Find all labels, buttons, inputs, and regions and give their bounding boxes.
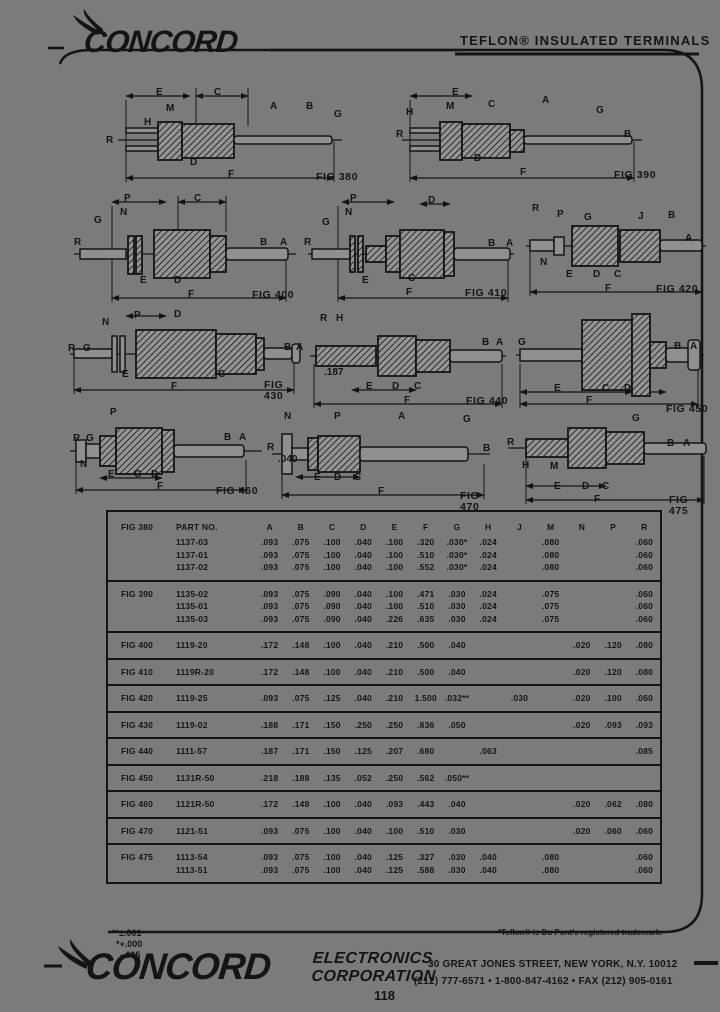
dim-label-fig450-D: D [624, 384, 631, 394]
dim-label-fig380-E: E [156, 88, 163, 98]
value-cell-G: .030 [441, 851, 472, 864]
figure-fig390: HMECAGRBDFFIG 390 [392, 82, 700, 190]
value-cell-D: .040 [348, 864, 379, 877]
dim-label-fig380-F: F [228, 170, 234, 180]
value-cell-D: .052 [348, 772, 379, 785]
header-brand-logo: CONCORD [82, 24, 239, 60]
column-header-P: P [598, 518, 629, 536]
value-cell-N: .020 [566, 825, 597, 838]
dim-label-fig410-G: G [322, 218, 330, 228]
figure-caption-fig410: FIG 410 [465, 288, 507, 299]
table-group-fig-390: FIG 3901135-02.093.075.090.040.100.471.0… [108, 580, 660, 632]
footnote-teflon-trademark: *Teflon® is Du Pont's registered tradema… [498, 928, 663, 937]
value-cell-E: .100 [379, 588, 410, 601]
dim-label-fig400-D: D [174, 276, 181, 286]
value-cell-R: .085 [629, 745, 660, 758]
dim-label-fig470-040: .040 [278, 455, 297, 465]
value-cell-E: .093 [379, 798, 410, 811]
value-cell-F: .500 [410, 639, 441, 652]
value-cell-D: .040 [348, 549, 379, 562]
fig-cell: FIG 410 [108, 666, 166, 679]
value-cell-E: .210 [379, 692, 410, 705]
dim-label-fig390-B: B [624, 130, 631, 140]
fig-cell: FIG 390 [108, 588, 166, 601]
figure-fig475: RGBAHMEDCFFIG 475 [502, 408, 710, 508]
value-cell-C: .150 [316, 719, 347, 732]
dim-label-fig475-G: G [632, 414, 640, 424]
value-cell-N: .020 [566, 798, 597, 811]
value-cell-F: .680 [410, 745, 441, 758]
dim-label-fig390-G: G [596, 106, 604, 116]
dim-label-fig400-R: R [74, 238, 81, 248]
value-cell-G: .040 [441, 666, 472, 679]
figure-fig440: RHBA.187EDCFFIG 440 [306, 310, 514, 410]
dim-label-fig475-R: R [507, 438, 514, 448]
value-cell-A: .093 [254, 561, 285, 574]
column-header-A: A [254, 518, 285, 536]
value-cell-H: .063 [473, 745, 504, 758]
value-cell-C: .100 [316, 561, 347, 574]
value-cell-F: .320 [410, 536, 441, 549]
figure-drawing [502, 408, 710, 508]
dim-label-fig380-M: M [166, 104, 174, 114]
column-header-J: J [504, 518, 535, 536]
dim-label-fig450-E: E [554, 384, 561, 394]
dim-label-fig420-F: F [605, 284, 611, 294]
dim-label-fig430-R: R [68, 344, 75, 354]
dim-label-fig470-D: D [334, 473, 341, 483]
dim-label-fig430-F: F [171, 382, 177, 392]
dim-label-fig475-F: F [594, 495, 600, 505]
value-cell-B: .075 [285, 851, 316, 864]
value-cell-B: .075 [285, 864, 316, 877]
value-cell-G: .030 [441, 588, 472, 601]
part-no-cell: 1111-57 [166, 745, 254, 758]
value-cell-E: .250 [379, 772, 410, 785]
dim-label-fig390-M: M [446, 102, 454, 112]
table-group-fig-470: FIG 4701121-51.093.075.100.040.100.510.0… [108, 817, 660, 844]
dim-label-fig475-D: D [582, 482, 589, 492]
value-cell-F: 1.500 [410, 692, 441, 705]
dim-label-fig390-C: C [488, 100, 495, 110]
dim-label-fig460-B: B [224, 433, 231, 443]
fig-cell-header: FIG 380 [108, 518, 166, 536]
value-cell-C: .100 [316, 864, 347, 877]
table-row: FIG 4101119R-20.172.148.100.040.210.500.… [108, 666, 660, 679]
value-cell-F: .443 [410, 798, 441, 811]
figure-fig470: NPAGR.040BEDCFFIG 470 [266, 402, 496, 510]
table-group-fig-440: FIG 4401111-57.187.171.150.125.207.680.0… [108, 737, 660, 764]
value-cell-B: .148 [285, 666, 316, 679]
dim-label-fig460-F: F [157, 482, 163, 492]
value-cell-M: .080 [535, 851, 566, 864]
value-cell-A: .093 [254, 692, 285, 705]
value-cell-B: .075 [285, 613, 316, 626]
value-cell-H: .024 [473, 600, 504, 613]
table-group-fig-420: FIG 4201119-25.093.075.125.040.2101.500.… [108, 684, 660, 711]
table-row: FIG 4701121-51.093.075.100.040.100.510.0… [108, 825, 660, 838]
value-cell-E: .226 [379, 613, 410, 626]
figure-fig450: GBAECDFFIG 450 [512, 300, 710, 418]
fig-cell: FIG 460 [108, 798, 166, 811]
value-cell-M: .075 [535, 613, 566, 626]
dim-label-fig400-F: F [188, 290, 194, 300]
value-cell-F: .510 [410, 600, 441, 613]
column-header-C: C [316, 518, 347, 536]
dim-label-fig400-P: P [124, 194, 131, 204]
value-cell-M: .075 [535, 588, 566, 601]
table-row: 1137-03.093.075.100.040.100.320.030*.024… [108, 536, 660, 549]
table-group-fig-430: FIG 4301119-02.188.171.150.250.250.836.0… [108, 711, 660, 738]
part-no-header: PART NO. [166, 518, 254, 536]
part-no-cell: 1119-25 [166, 692, 254, 705]
part-no-cell: 1135-03 [166, 613, 254, 626]
dim-label-fig390-A: A [542, 96, 549, 106]
column-header-H: H [473, 518, 504, 536]
dim-label-fig420-B: B [668, 211, 675, 221]
value-cell-E: .100 [379, 825, 410, 838]
part-no-cell: 1119-02 [166, 719, 254, 732]
value-cell-M: .075 [535, 600, 566, 613]
table-row: 1135-03.093.075.090.040.226.635.030.024.… [108, 613, 660, 626]
value-cell-M: .080 [535, 549, 566, 562]
value-cell-E: .100 [379, 600, 410, 613]
value-cell-E: .100 [379, 561, 410, 574]
dim-label-fig460-R: R [73, 434, 80, 444]
value-cell-H: .024 [473, 588, 504, 601]
value-cell-D: .040 [348, 561, 379, 574]
value-cell-P: .100 [598, 692, 629, 705]
value-cell-N: .020 [566, 692, 597, 705]
dim-label-fig380-R: R [106, 136, 113, 146]
value-cell-R: .060 [629, 536, 660, 549]
part-no-cell: 1135-02 [166, 588, 254, 601]
part-no-cell: 1137-03 [166, 536, 254, 549]
table-group-fig-410: FIG 4101119R-20.172.148.100.040.210.500.… [108, 658, 660, 685]
value-cell-D: .040 [348, 536, 379, 549]
value-cell-J: .030 [504, 692, 535, 705]
fig-cell: FIG 400 [108, 639, 166, 652]
dim-label-fig470-C: C [354, 473, 361, 483]
dim-label-fig460-N: N [80, 460, 87, 470]
value-cell-F: .836 [410, 719, 441, 732]
dim-label-fig440-D: D [392, 382, 399, 392]
value-cell-P: .060 [598, 825, 629, 838]
value-cell-E: .207 [379, 745, 410, 758]
figure-fig430: NPDRGBAECFFIG 430 [66, 306, 304, 408]
value-cell-R: .060 [629, 613, 660, 626]
value-cell-P: .120 [598, 666, 629, 679]
table-row: 1135-01.093.075.090.040.100.510.030.024.… [108, 600, 660, 613]
fig-cell: FIG 450 [108, 772, 166, 785]
dim-label-fig470-N: N [284, 412, 291, 422]
dim-label-fig460-A: A [239, 433, 246, 443]
dim-label-fig400-N: N [120, 208, 127, 218]
value-cell-G: .030 [441, 864, 472, 877]
value-cell-R: .080 [629, 798, 660, 811]
figure-fig380: EMCABGHRDFFIG 380 [100, 82, 362, 190]
value-cell-P: .062 [598, 798, 629, 811]
dim-label-fig380-C: C [214, 88, 221, 98]
dim-label-fig450-C: C [602, 384, 609, 394]
value-cell-G: .040 [441, 639, 472, 652]
dim-label-fig380-G: G [334, 110, 342, 120]
figure-caption-fig420: FIG 420 [656, 284, 698, 295]
value-cell-F: .552 [410, 561, 441, 574]
dim-label-fig470-A: A [398, 412, 405, 422]
dim-label-fig410-D: D [428, 196, 435, 206]
value-cell-H: .040 [473, 851, 504, 864]
footer-brand-logo: CONCORD [84, 946, 273, 988]
value-cell-N: .020 [566, 666, 597, 679]
value-cell-N: .020 [566, 639, 597, 652]
column-header-F: F [410, 518, 441, 536]
page-title: TEFLON® INSULATED TERMINALS [460, 33, 710, 48]
value-cell-B: .075 [285, 536, 316, 549]
dim-label-fig410-E: E [362, 276, 369, 286]
value-cell-B: .075 [285, 588, 316, 601]
dim-label-fig410-A: A [506, 239, 513, 249]
dim-label-fig390-E: E [452, 88, 459, 98]
dim-label-fig460-D: D [151, 470, 158, 480]
value-cell-C: .100 [316, 536, 347, 549]
value-cell-B: .171 [285, 719, 316, 732]
value-cell-A: .188 [254, 719, 285, 732]
value-cell-E: .125 [379, 851, 410, 864]
value-cell-R: .060 [629, 692, 660, 705]
figure-caption-fig475: FIG 475 [669, 495, 710, 517]
value-cell-F: .327 [410, 851, 441, 864]
value-cell-G: .030 [441, 825, 472, 838]
value-cell-A: .187 [254, 745, 285, 758]
footer-phones: (212) 777-6571 • 1-800-847-4162 • FAX (2… [414, 976, 673, 987]
dim-label-fig470-F: F [378, 487, 384, 497]
value-cell-B: .148 [285, 798, 316, 811]
dim-label-fig475-A: A [683, 439, 690, 449]
value-cell-D: .040 [348, 798, 379, 811]
value-cell-G: .030* [441, 561, 472, 574]
value-cell-B: .075 [285, 549, 316, 562]
dim-label-fig390-H: H [406, 108, 413, 118]
table-group-fig-460: FIG 4601121R-50.172.148.100.040.093.443.… [108, 790, 660, 817]
dim-label-fig400-C: C [194, 194, 201, 204]
dim-label-fig420-N: N [540, 258, 547, 268]
value-cell-D: .040 [348, 851, 379, 864]
dim-label-fig470-R: R [267, 443, 274, 453]
value-cell-A: .218 [254, 772, 285, 785]
catalog-page: CONCORD TEFLON® INSULATED TERMINALS EMCA… [0, 0, 720, 1012]
value-cell-D: .125 [348, 745, 379, 758]
value-cell-C: .090 [316, 613, 347, 626]
value-cell-A: .093 [254, 536, 285, 549]
value-cell-D: .040 [348, 692, 379, 705]
dim-label-fig460-E: E [108, 470, 115, 480]
column-header-E: E [379, 518, 410, 536]
dim-label-fig380-B: B [306, 102, 313, 112]
dim-label-fig430-E: E [122, 370, 129, 380]
dim-label-fig440-B: B [482, 338, 489, 348]
dimension-table: FIG 380PART NO.ABCDEFGHJMNPR1137-03.093.… [106, 510, 662, 884]
figure-fig400: PNCGRBAEDFFIG 400 [66, 192, 304, 310]
value-cell-A: .093 [254, 825, 285, 838]
value-cell-R: .060 [629, 549, 660, 562]
value-cell-C: .090 [316, 600, 347, 613]
dim-label-fig440-H: H [336, 314, 343, 324]
table-group-fig-475: FIG 4751113-54.093.075.100.040.125.327.0… [108, 843, 660, 882]
value-cell-H: .024 [473, 536, 504, 549]
column-header-B: B [285, 518, 316, 536]
dim-label-fig380-D: D [190, 158, 197, 168]
part-no-cell: 1113-54 [166, 851, 254, 864]
value-cell-H: .024 [473, 549, 504, 562]
dim-label-fig470-B: B [483, 444, 490, 454]
dim-label-fig460-P: P [110, 408, 117, 418]
dim-label-fig390-D: D [474, 154, 481, 164]
value-cell-E: .125 [379, 864, 410, 877]
column-header-N: N [566, 518, 597, 536]
value-cell-D: .040 [348, 613, 379, 626]
fig-cell: FIG 430 [108, 719, 166, 732]
dim-label-fig380-H: H [144, 118, 151, 128]
value-cell-D: .250 [348, 719, 379, 732]
figure-caption-fig460: FIG 460 [216, 486, 258, 497]
value-cell-F: .500 [410, 666, 441, 679]
part-no-cell: 1121R-50 [166, 798, 254, 811]
dim-label-fig420-J: J [638, 212, 644, 222]
dim-label-fig450-G: G [518, 338, 526, 348]
dim-label-fig400-G: G [94, 216, 102, 226]
dim-label-fig470-E: E [314, 473, 321, 483]
dim-label-fig410-B: B [488, 239, 495, 249]
table-row: FIG 4201119-25.093.075.125.040.2101.500.… [108, 692, 660, 705]
dim-label-fig470-P: P [334, 412, 341, 422]
dim-label-fig440-E: E [366, 382, 373, 392]
table-row: 1113-51.093.075.100.040.125.588.030.040.… [108, 864, 660, 877]
value-cell-A: .093 [254, 588, 285, 601]
value-cell-C: .150 [316, 745, 347, 758]
dim-label-fig460-C: C [134, 470, 141, 480]
dim-label-fig420-C: C [614, 270, 621, 280]
value-cell-H: .040 [473, 864, 504, 877]
value-cell-C: .100 [316, 549, 347, 562]
column-header-M: M [535, 518, 566, 536]
value-cell-C: .100 [316, 666, 347, 679]
dim-label-fig420-R: R [532, 204, 539, 214]
value-cell-F: .471 [410, 588, 441, 601]
value-cell-A: .172 [254, 639, 285, 652]
figure-caption-fig390: FIG 390 [614, 170, 656, 181]
footer-address: 30 GREAT JONES STREET, NEW YORK, N.Y. 10… [428, 959, 677, 970]
value-cell-H: .024 [473, 613, 504, 626]
value-cell-C: .090 [316, 588, 347, 601]
dim-label-fig475-E: E [554, 482, 561, 492]
value-cell-C: .100 [316, 851, 347, 864]
figure-drawing [512, 300, 710, 418]
value-cell-B: .171 [285, 745, 316, 758]
value-cell-A: .093 [254, 613, 285, 626]
table-row: FIG 3901135-02.093.075.090.040.100.471.0… [108, 588, 660, 601]
value-cell-C: .100 [316, 798, 347, 811]
fig-cell: FIG 470 [108, 825, 166, 838]
dim-label-fig420-A: A [685, 234, 692, 244]
dim-label-fig420-D: D [593, 270, 600, 280]
part-no-cell: 1131R-50 [166, 772, 254, 785]
dim-label-fig430-P: P [134, 311, 141, 321]
table-group-fig-380: FIG 380PART NO.ABCDEFGHJMNPR1137-03.093.… [108, 512, 660, 580]
value-cell-F: .510 [410, 825, 441, 838]
table-row: FIG 4601121R-50.172.148.100.040.093.443.… [108, 798, 660, 811]
value-cell-B: .075 [285, 825, 316, 838]
dim-label-fig440-R: R [320, 314, 327, 324]
value-cell-R: .060 [629, 825, 660, 838]
figure-caption-fig380: FIG 380 [316, 172, 358, 183]
dim-label-fig475-H: H [522, 461, 529, 471]
figure-fig460: PRGBANECDFFIG 460 [66, 406, 274, 506]
figure-caption-fig430: FIG 430 [264, 380, 304, 402]
dim-label-fig430-C: C [218, 370, 225, 380]
value-cell-A: .172 [254, 798, 285, 811]
value-cell-B: .148 [285, 639, 316, 652]
dim-label-fig450-F: F [586, 396, 592, 406]
table-row: FIG 380PART NO.ABCDEFGHJMNPR [108, 518, 660, 536]
value-cell-C: .100 [316, 825, 347, 838]
dim-label-fig410-F: F [406, 288, 412, 298]
table-row: FIG 4001119-20.172.148.100.040.210.500.0… [108, 639, 660, 652]
dim-label-fig410-C: C [408, 274, 415, 284]
dim-label-fig420-P: P [557, 210, 564, 220]
value-cell-G: .030 [441, 613, 472, 626]
value-cell-C: .100 [316, 639, 347, 652]
part-no-cell: 1121-51 [166, 825, 254, 838]
table-group-fig-450: FIG 4501131R-50.218.188.135.052.250.562.… [108, 764, 660, 791]
value-cell-B: .188 [285, 772, 316, 785]
value-cell-F: .562 [410, 772, 441, 785]
dim-label-fig440-A: A [496, 338, 503, 348]
column-header-R: R [629, 518, 660, 536]
dim-label-fig410-P: P [350, 194, 357, 204]
dim-label-fig380-A: A [270, 102, 277, 112]
value-cell-G: .040 [441, 798, 472, 811]
value-cell-C: .135 [316, 772, 347, 785]
value-cell-M: .080 [535, 864, 566, 877]
value-cell-P: .093 [598, 719, 629, 732]
value-cell-F: .510 [410, 549, 441, 562]
value-cell-R: .093 [629, 719, 660, 732]
value-cell-G: .050 [441, 719, 472, 732]
column-header-G: G [441, 518, 472, 536]
part-no-cell: 1135-01 [166, 600, 254, 613]
table-row: 1137-02.093.075.100.040.100.552.030*.024… [108, 561, 660, 574]
fig-cell: FIG 440 [108, 745, 166, 758]
dim-label-fig390-R: R [396, 130, 403, 140]
fig-cell: FIG 475 [108, 851, 166, 864]
footer-division-line1: ELECTRONICS [312, 950, 438, 968]
footnote-tolerance-1: **±.001 [112, 928, 141, 939]
dim-label-fig410-N: N [345, 208, 352, 218]
value-cell-F: .635 [410, 613, 441, 626]
value-cell-A: .093 [254, 864, 285, 877]
dim-label-fig475-M: M [550, 462, 558, 472]
figure-caption-fig400: FIG 400 [252, 290, 294, 301]
value-cell-B: .075 [285, 561, 316, 574]
dim-label-fig420-G: G [584, 213, 592, 223]
value-cell-M: .080 [535, 536, 566, 549]
dim-label-fig440-C: C [414, 382, 421, 392]
fig-cell: FIG 420 [108, 692, 166, 705]
dim-label-fig440-187: .187 [324, 368, 343, 378]
table-row: FIG 4301119-02.188.171.150.250.250.836.0… [108, 719, 660, 732]
column-header-D: D [348, 518, 379, 536]
